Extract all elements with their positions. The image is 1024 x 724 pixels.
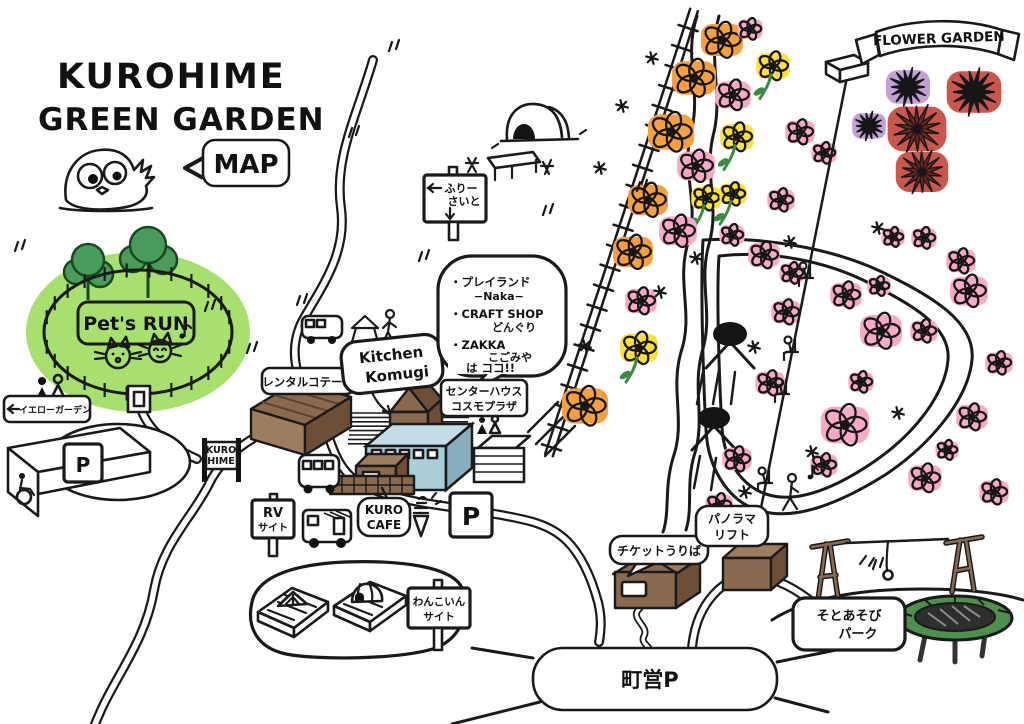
flower [748, 240, 780, 270]
info-line: ・CRAFT SHOP [450, 307, 544, 321]
flower [562, 384, 608, 428]
west-parking-label: P [76, 453, 91, 477]
page-title: KUROHIME [57, 57, 286, 97]
flower [888, 104, 947, 154]
flower [659, 213, 697, 249]
flower [625, 286, 657, 316]
minibus-icon [299, 455, 339, 494]
flower [935, 439, 958, 461]
flower [956, 402, 988, 432]
flower [677, 148, 715, 184]
flower [911, 226, 936, 250]
wood-deck [330, 476, 414, 494]
map-bubble-label: MAP [213, 150, 278, 180]
flower [860, 311, 902, 351]
flower [896, 150, 949, 194]
flower [737, 17, 762, 41]
free-site-sign: ふりー さいと [424, 167, 486, 240]
soto-asobi-sign [793, 598, 905, 650]
flower-garden-banner: FLOWER GARDEN [856, 21, 1019, 64]
yellow-garden-label: イエローガーデン [19, 404, 91, 416]
center-house-label: コスモプラザ [451, 399, 517, 413]
ticket-office: チケットうりば [610, 536, 708, 608]
trampoline [898, 596, 1012, 662]
sparkle-flower [616, 100, 628, 112]
tick-mark [419, 250, 429, 261]
panorama-lift-label: リフト [714, 528, 750, 542]
flower [719, 223, 744, 247]
rental-cottage: レンタルコテージ [251, 368, 354, 455]
sparkle-flower [594, 162, 606, 174]
visitor-icons [477, 416, 500, 434]
mascot-bird-icon [60, 150, 154, 211]
flower [715, 78, 751, 112]
flower [785, 118, 814, 146]
ticket-office-label: チケットうりば [617, 543, 701, 558]
panorama-lift-label: パノラマ [708, 512, 756, 526]
flower [947, 67, 1002, 116]
flower [946, 247, 975, 275]
title-block: KUROHIME GREEN GARDEN MAP [38, 57, 325, 211]
kuro-cafe-label: CAFE [367, 518, 402, 532]
rv-site: RV サイト [252, 494, 351, 556]
flower [810, 452, 837, 478]
terrace-stand [474, 436, 530, 482]
tick-mark [543, 204, 553, 215]
flower [830, 280, 862, 310]
flower [979, 478, 1008, 506]
flower [701, 20, 743, 60]
flower [985, 350, 1012, 376]
info-line: どんぐり [492, 321, 536, 334]
walking-person [783, 466, 818, 510]
page-title: GREEN GARDEN [38, 102, 325, 138]
flower [767, 187, 794, 213]
info-line: ・プレイランド [450, 275, 531, 289]
rv-camper-icon [303, 510, 351, 548]
pets-run-area: Pet's RUN [26, 227, 250, 412]
soto-asobi-label: パーク [838, 627, 877, 642]
sparkle-flower [690, 252, 702, 264]
tick-mark [389, 40, 399, 51]
sparkle-flower [748, 341, 760, 353]
info-bubble: ・プレイランド −Naka− ・CRAFT SHOP どんぐり ・ZAKKA こ… [438, 256, 566, 394]
town-parking: 町営P [452, 648, 836, 724]
free-site-label: さいと [448, 195, 481, 208]
pets-run-gate [128, 386, 150, 412]
flower [716, 121, 753, 169]
kitchen-komugi-sign: Kitchen Komugi [340, 333, 445, 395]
camper-van-icon [302, 316, 342, 344]
tick-mark [15, 240, 25, 251]
flower [771, 298, 800, 326]
flower [848, 370, 873, 394]
rv-site-label: RV [263, 506, 283, 521]
map-bubble: MAP [185, 140, 289, 186]
sparkle-flower [646, 52, 658, 64]
kuro-cafe-label: KURO [365, 503, 403, 517]
pets-run-label: Pet's RUN [83, 313, 189, 335]
lift-bottom-station [723, 544, 787, 590]
flower [852, 111, 886, 141]
sparkle-flower [739, 486, 751, 498]
pointer-arrow [372, 392, 390, 414]
rv-site-label: サイト [258, 522, 288, 534]
flower [648, 110, 694, 154]
center-parking-label: P [462, 502, 480, 531]
soto-asobi-label: そとあそび [816, 609, 882, 624]
flower [752, 50, 789, 98]
flower [881, 226, 904, 248]
soto-asobi-park: そとあそび パーク [772, 537, 1023, 662]
camp-table-icon [352, 316, 378, 342]
flower [613, 233, 653, 271]
info-line: −Naka− [474, 290, 524, 303]
flower [908, 462, 942, 494]
flower [722, 445, 751, 473]
tick-mark [873, 558, 883, 569]
wanko-site: わんこいん サイト [250, 562, 470, 658]
flower [618, 330, 658, 382]
town-parking-label: 町営P [621, 668, 678, 692]
flower-field [562, 17, 1013, 518]
center-house-label: センターハウス [446, 385, 523, 398]
wanko-site-label: サイト [423, 611, 455, 623]
sparkle-flower [654, 286, 666, 298]
flower [910, 318, 937, 344]
map-canvas: Pet's RUN [0, 0, 1024, 724]
tick-mark [297, 294, 307, 305]
sparkle-flower [892, 407, 904, 419]
panorama-lift-sign: パノラマ リフト [696, 506, 768, 546]
rental-cottage-label: レンタルコテージ [262, 375, 354, 389]
info-line: は ココ!! [466, 361, 515, 375]
tunnel-tent [492, 104, 586, 148]
kurohime-gate-sign: KURO HIME [202, 438, 241, 482]
flower [672, 57, 716, 99]
center-parking: P [450, 493, 492, 537]
flower [886, 67, 930, 107]
wanko-site-label: わんこいん [413, 596, 466, 608]
flower [867, 275, 890, 297]
free-site-label: ふりー [445, 182, 478, 195]
kurohime-sign-label: KURO [206, 445, 236, 456]
flower [628, 181, 668, 219]
flower [950, 273, 988, 309]
flower [821, 402, 869, 448]
kurohime-sign-label: HIME [207, 456, 234, 467]
info-line: ・ZAKKA [450, 338, 506, 352]
